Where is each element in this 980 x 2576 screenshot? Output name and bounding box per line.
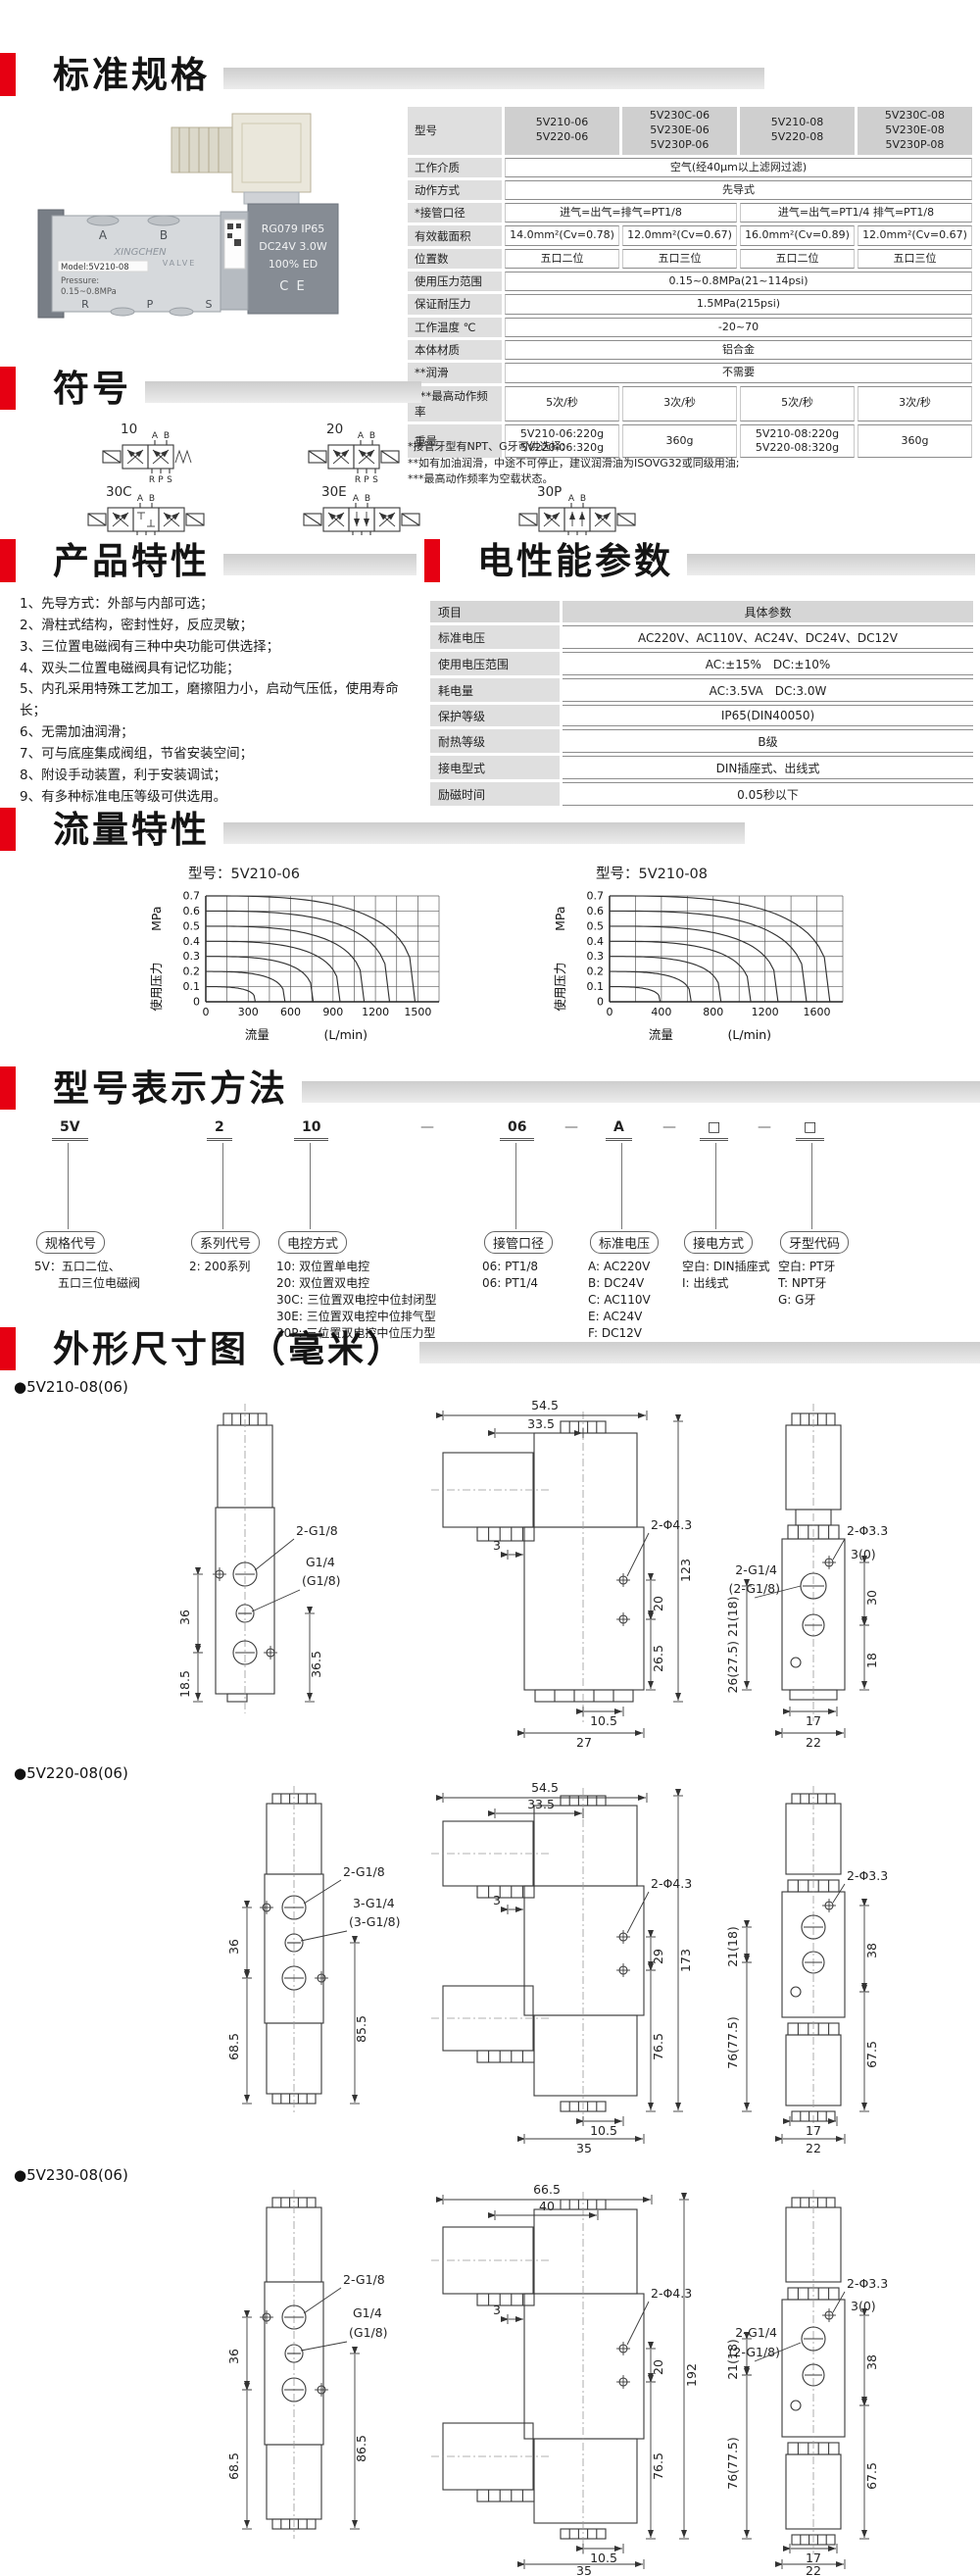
svg-text:流量: 流量 <box>245 1027 269 1042</box>
port-label-r: R <box>81 298 89 311</box>
svg-text:B: B <box>369 431 375 441</box>
svg-text:1500: 1500 <box>404 1006 431 1018</box>
model-separator: — <box>557 1119 586 1138</box>
dim-label: 68.5 <box>226 2033 241 2060</box>
symbol-code: 10 <box>121 421 137 437</box>
svg-text:(L/min): (L/min) <box>728 1027 772 1042</box>
dim-label: 33.5 <box>527 1797 555 1811</box>
dim-label: 35 <box>576 2141 592 2155</box>
dim-label: 38 <box>864 1943 879 1958</box>
svg-text:0.6: 0.6 <box>183 905 201 917</box>
header-gradient-bar <box>223 68 764 89</box>
section-header-model: 型号表示方法 <box>0 1065 980 1112</box>
spec-table: 型号5V210-065V220-065V230C-065V230E-065V23… <box>405 104 975 461</box>
spec-row-label: 使用压力范围 <box>408 272 502 291</box>
svg-text:使用压力: 使用压力 <box>553 963 567 1012</box>
svg-text:A: A <box>353 494 360 504</box>
dim-label: 2-Φ4.3 <box>651 1517 692 1532</box>
svg-text:B: B <box>149 494 155 504</box>
section-title-model: 型号表示方法 <box>53 1070 288 1107</box>
model-separator: — <box>413 1119 442 1138</box>
coil-label-3: 100% ED <box>269 258 318 271</box>
header-gradient-bar <box>687 554 975 575</box>
spec-cell: 空气(经40μm以上滤网过滤) <box>505 158 972 177</box>
spec-row-label: 保证耐压力 <box>408 294 502 314</box>
elec-cell: B级 <box>563 729 973 753</box>
spec-cell: 5次/秒 <box>505 386 619 421</box>
spec-cell: 12.0mm²(Cv=0.67) <box>857 225 972 245</box>
spec-cell: 五口三位 <box>857 249 972 269</box>
dim-label: 21(18) <box>725 1926 740 1967</box>
spec-header-model: 5V210-085V220-08 <box>740 107 855 155</box>
svg-text:1200: 1200 <box>752 1006 779 1018</box>
feature-item: 5、内孔采用特殊工艺加工，磨擦阻力小，启动气压低，使用寿命长； <box>20 679 412 722</box>
section-title-dimensions: 外形尺寸图（毫米） <box>53 1331 406 1367</box>
elec-cell: AC:±15% DC:±10% <box>563 652 973 675</box>
model-code: □ <box>796 1119 824 1141</box>
model-code: A <box>606 1119 632 1141</box>
svg-text:R: R <box>149 475 155 485</box>
dim-label: 76(77.5) <box>725 2016 740 2069</box>
red-accent-block <box>424 539 440 582</box>
spec-row-label: 有效截面积 <box>408 225 502 245</box>
dim-label: 3 <box>493 2303 501 2317</box>
dim-label: 2-Φ4.3 <box>651 1876 692 1891</box>
dim-label: 54.5 <box>531 1782 559 1795</box>
dim-label: 123 <box>678 1559 693 1582</box>
feature-item: 4、双头二位置电磁阀具有记忆功能； <box>20 659 412 680</box>
section-title-flow: 流量特性 <box>53 812 210 848</box>
spec-cell: 12.0mm²(Cv=0.67) <box>622 225 737 245</box>
dim-label: 173 <box>678 1949 693 1972</box>
model-field-box: 电控方式 <box>278 1231 347 1254</box>
spec-cell: 0.15~0.8MPa(21~114psi) <box>505 272 972 291</box>
model-connector-line <box>310 1143 311 1229</box>
brand-label: XINGCHEN <box>113 247 167 258</box>
svg-text:0.4: 0.4 <box>587 935 605 948</box>
elec-header-item: 项目 <box>430 601 560 622</box>
dim-label: 18.5 <box>177 1670 192 1698</box>
svg-text:0.5: 0.5 <box>183 919 201 932</box>
feature-item: 8、附设手动装置，利于安装调试； <box>20 766 412 787</box>
svg-text:0.2: 0.2 <box>587 966 605 978</box>
svg-text:0.1: 0.1 <box>183 980 201 993</box>
dim-label: 2-Φ3.3 <box>847 1523 888 1538</box>
feature-item: 2、滑柱式结构，密封性好，反应灵敏； <box>20 616 412 637</box>
dim-label: 17 <box>806 2123 821 2138</box>
dim-label: 2-G1/4 <box>735 1562 777 1577</box>
model-field-box: 牙型代码 <box>780 1231 849 1254</box>
features-list: 1、先导方式：外部与内部可选；2、滑柱式结构，密封性好，反应灵敏；3、三位置电磁… <box>20 594 412 809</box>
model-field-options: 空白: DIN插座式 I: 出线式 <box>682 1259 770 1292</box>
svg-text:0: 0 <box>597 996 604 1009</box>
svg-text:900: 900 <box>322 1006 343 1018</box>
spec-cell: 进气=出气=排气=PT1/8 <box>505 203 737 223</box>
svg-text:A: A <box>358 431 365 441</box>
dim-label: 20 <box>651 1596 665 1611</box>
coil-label-1: RG079 IP65 <box>262 223 325 235</box>
dim-label: 18 <box>864 1653 879 1668</box>
port-label-p: P <box>147 298 154 311</box>
svg-text:A: A <box>137 494 144 504</box>
svg-text:P: P <box>158 475 164 485</box>
svg-text:0: 0 <box>607 1006 613 1018</box>
svg-text:(L/min): (L/min) <box>324 1027 368 1042</box>
elec-header-value: 具体参数 <box>563 601 973 622</box>
elec-cell: IP65(DIN40050) <box>563 705 973 726</box>
spec-cell: 五口二位 <box>740 249 855 269</box>
spec-cell: 5次/秒 <box>740 386 855 421</box>
spec-cell: 铝合金 <box>505 340 972 360</box>
spec-cell: 3次/秒 <box>857 386 972 421</box>
dim-label: 10.5 <box>590 2123 617 2138</box>
dim-label: 36 <box>177 1610 192 1625</box>
model-code: □ <box>700 1119 728 1141</box>
spec-cell: 14.0mm²(Cv=0.78) <box>505 225 619 245</box>
din-connector <box>232 114 311 192</box>
dim-label: 76.5 <box>651 2033 665 2060</box>
header-gradient-bar <box>302 1081 980 1103</box>
elec-row-label: 保护等级 <box>430 705 560 726</box>
header-gradient-bar <box>223 554 416 575</box>
spec-cell: 五口二位 <box>505 249 619 269</box>
dim-label: 20 <box>651 2359 665 2375</box>
dim-label: 86.5 <box>354 2435 368 2462</box>
header-gradient-bar <box>145 381 421 403</box>
spec-row-label: **润滑 <box>408 363 502 382</box>
dim-label: G1/4 <box>353 2305 382 2320</box>
section-header-features: 产品特性 <box>0 537 416 584</box>
dim-label: 3 <box>493 1538 501 1553</box>
model-connector-line <box>621 1143 622 1229</box>
section-header-dimensions: 外形尺寸图（毫米） <box>0 1325 980 1372</box>
dim-label: 2-G1/4 <box>735 2325 777 2340</box>
svg-text:P: P <box>364 475 369 485</box>
model-code: 06 <box>500 1119 534 1141</box>
dim-label: (G1/8) <box>349 2325 388 2340</box>
model-connector-line <box>715 1143 716 1229</box>
elec-cell: 0.05秒以下 <box>563 782 973 806</box>
section-title-electrical: 电性能参数 <box>477 543 673 579</box>
symbol-code: 20 <box>326 421 343 437</box>
dim-label: (G1/8) <box>302 1573 341 1588</box>
section-header-electrical: 电性能参数 <box>424 537 975 584</box>
chart-title-2: 型号：5V210-08 <box>596 863 708 883</box>
dim-label: 2-G1/8 <box>343 1864 385 1879</box>
spec-header-model: 5V230C-085V230E-085V230P-08 <box>857 107 972 155</box>
section-header-symbols: 符号 <box>0 365 421 412</box>
dim-label: 17 <box>806 1713 821 1728</box>
model-field-box: 系列代号 <box>191 1231 260 1254</box>
spec-cell: 五口三位 <box>622 249 737 269</box>
dim-label: 3(0) <box>851 2299 876 2313</box>
svg-text:S: S <box>167 475 172 485</box>
spec-header-model: 5V230C-065V230E-065V230P-06 <box>622 107 737 155</box>
svg-text:1200: 1200 <box>362 1006 389 1018</box>
feature-item: 1、先导方式：外部与内部可选； <box>20 594 412 616</box>
model-connector-line <box>222 1143 223 1229</box>
dim-label: 22 <box>806 2141 821 2155</box>
flow-chart-5v210-08: 00.10.20.30.40.50.60.7040080012001600MPa… <box>549 882 853 1051</box>
feature-item: 7、可与底座集成阀组，节省安装空间； <box>20 744 412 766</box>
dim-label: 35 <box>576 2563 592 2576</box>
dim-label: 27 <box>576 1735 592 1750</box>
dim-label: (3-G1/8) <box>349 1914 400 1929</box>
svg-text:B: B <box>580 494 586 504</box>
spec-row-label: 位置数 <box>408 249 502 269</box>
valve-symbols: 10ABRPS20ABRPS30CABRPS30EABRPS30PABRPS <box>29 421 755 535</box>
red-accent-block <box>0 53 16 96</box>
elec-cell: AC220V、AC110V、AC24V、DC24V、DC12V <box>563 625 973 649</box>
dim-label: 192 <box>684 2363 699 2387</box>
spec-row-label: 工作介质 <box>408 158 502 177</box>
dim-label: 21(18) <box>725 2339 740 2380</box>
dimension-drawing-5v220: 3668.585.52-G1/83-G1/4(3-G1/8)54.533.532… <box>0 1782 980 2156</box>
svg-text:MPa: MPa <box>553 906 567 930</box>
svg-text:B: B <box>365 494 370 504</box>
model-field-box: 接管口径 <box>484 1231 553 1254</box>
model-separator: — <box>750 1119 779 1138</box>
elec-row-label: 耗电量 <box>430 678 560 702</box>
spec-row-label: *接管口径 <box>408 203 502 223</box>
cable-gland <box>171 127 232 173</box>
svg-text:0.7: 0.7 <box>587 890 605 903</box>
coil-label-2: DC24V 3.0W <box>259 240 327 253</box>
dim-label: 10.5 <box>590 1713 617 1728</box>
dim-label: 2-G1/8 <box>343 2272 385 2287</box>
svg-text:0.2: 0.2 <box>183 966 201 978</box>
red-accent-block <box>0 1066 16 1110</box>
red-accent-block <box>0 1327 16 1370</box>
svg-text:400: 400 <box>651 1006 671 1018</box>
dim-label: 33.5 <box>527 1416 555 1431</box>
svg-text:1600: 1600 <box>804 1006 831 1018</box>
section-title-features: 产品特性 <box>53 543 210 579</box>
section-header-flow: 流量特性 <box>0 806 745 853</box>
dim-label: 85.5 <box>354 2015 368 2043</box>
svg-text:S: S <box>372 475 378 485</box>
svg-text:B: B <box>164 431 170 441</box>
dimension-drawing-5v210: 3618.536.52-G1/8G1/4(G1/8)54.533.531232-… <box>0 1396 980 1753</box>
red-accent-block <box>0 539 16 582</box>
model-connector-line <box>68 1143 69 1229</box>
svg-text:使用压力: 使用压力 <box>149 963 164 1012</box>
model-connector-line <box>811 1143 812 1229</box>
model-field-options: 空白: PT牙 T: NPT牙 G: G牙 <box>778 1259 835 1309</box>
elec-row-label: 励磁时间 <box>430 782 560 806</box>
model-field-options: 2: 200系列 <box>189 1259 250 1275</box>
dim-label: 26.5 <box>651 1645 665 1672</box>
svg-text:MPa: MPa <box>149 906 164 930</box>
drawing-caption-5v210: ●5V210-08(06) <box>14 1378 128 1396</box>
brand-label-2: VALVE <box>163 259 197 268</box>
elec-cell: AC:3.5VA DC:3.0W <box>563 678 973 702</box>
svg-text:300: 300 <box>238 1006 259 1018</box>
section-title-standard: 标准规格 <box>53 57 210 93</box>
svg-text:0: 0 <box>193 996 200 1009</box>
spec-cell: 先导式 <box>505 180 972 200</box>
feature-item: 6、无需加油润滑； <box>20 722 412 744</box>
dim-label: 36 <box>226 1939 241 1955</box>
dimension-drawing-5v230: 3668.586.52-G1/8G1/4(G1/8)66.54032-Φ4.32… <box>0 2184 980 2576</box>
model-field-box: 标准电压 <box>590 1231 659 1254</box>
dim-label: 2-Φ3.3 <box>847 1868 888 1883</box>
drawing-caption-5v220: ●5V220-08(06) <box>14 1764 128 1782</box>
dim-label: 66.5 <box>533 2184 561 2197</box>
header-gradient-bar <box>223 822 745 844</box>
model-connector-line <box>515 1143 516 1229</box>
svg-text:800: 800 <box>703 1006 723 1018</box>
red-accent-block <box>0 367 16 410</box>
photo-pressure-label: Pressure: <box>61 276 99 286</box>
feature-item: 3、三位置电磁阀有三种中央功能可供选择； <box>20 637 412 659</box>
model-field-box: 规格代号 <box>36 1231 105 1254</box>
product-photo: RG079 IP65 DC24V 3.0W 100% ED C E A B XI… <box>24 106 353 351</box>
dim-label: 3-G1/4 <box>353 1896 395 1910</box>
header-gradient-bar <box>419 1342 980 1363</box>
symbol-code: 30E <box>321 484 347 500</box>
drawing-caption-5v230: ●5V230-08(06) <box>14 2166 128 2184</box>
port-label-a: A <box>99 228 108 242</box>
dim-label: 30 <box>864 1590 879 1606</box>
spec-header-label: 型号 <box>408 107 502 155</box>
svg-text:600: 600 <box>280 1006 301 1018</box>
elec-cell: DIN插座式、出线式 <box>563 756 973 779</box>
dim-label: 22 <box>806 1735 821 1750</box>
spec-cell: -20~70 <box>505 318 972 337</box>
svg-text:R: R <box>355 475 361 485</box>
dim-label: 3(0) <box>851 1547 876 1561</box>
symbol-code: 30P <box>537 484 562 500</box>
port-label-s: S <box>206 298 213 311</box>
spec-row-label: 工作温度 ℃ <box>408 318 502 337</box>
svg-text:0.3: 0.3 <box>587 950 605 963</box>
spec-row-label: 动作方式 <box>408 180 502 200</box>
dim-label: 26(27.5) 21(18) <box>725 1596 740 1693</box>
section-header-standard: 标准规格 <box>0 51 764 98</box>
red-accent-block <box>0 808 16 851</box>
svg-text:A: A <box>152 431 159 441</box>
electrical-table: 项目具体参数标准电压AC220V、AC110V、AC24V、DC24V、DC12… <box>427 598 976 809</box>
spec-cell: 进气=出气=PT1/4 排气=PT1/8 <box>740 203 972 223</box>
spec-row-label: ***最高动作频率 <box>408 386 502 421</box>
dim-label: 40 <box>539 2199 555 2213</box>
spec-cell: 3次/秒 <box>622 386 737 421</box>
chart-title-1: 型号：5V210-06 <box>188 863 300 883</box>
spec-cell: 16.0mm²(Cv=0.89) <box>740 225 855 245</box>
model-code: 5V <box>52 1119 88 1141</box>
elec-row-label: 耐热等级 <box>430 729 560 753</box>
symbol-code: 30C <box>106 484 132 500</box>
dim-label: 68.5 <box>226 2452 241 2480</box>
dim-label: G1/4 <box>306 1555 335 1569</box>
flow-chart-5v210-06: 00.10.20.30.40.50.60.7030060090012001500… <box>145 882 449 1051</box>
svg-text:0.5: 0.5 <box>587 919 605 932</box>
dim-label: 36.5 <box>309 1651 323 1678</box>
model-code: 2 <box>207 1119 232 1141</box>
photo-pressure-value: 0.15~0.8MPa <box>61 287 117 297</box>
model-designation-diagram: 5V规格代号5V：五口二位、 五口三位电磁阀2系列代号2: 200系列10电控方… <box>0 1119 980 1323</box>
model-field-options: 06: PT1/8 06: PT1/4 <box>482 1259 538 1292</box>
dim-label: 76(77.5) <box>725 2437 740 2490</box>
svg-text:流量: 流量 <box>649 1027 673 1042</box>
coil-label-ce: C E <box>279 279 306 294</box>
spec-header-model: 5V210-065V220-06 <box>505 107 619 155</box>
dim-label: 36 <box>226 2349 241 2364</box>
spec-row-label: 本体材质 <box>408 340 502 360</box>
dim-label: 3 <box>493 1893 501 1907</box>
elec-row-label: 标准电压 <box>430 625 560 649</box>
section-title-symbols: 符号 <box>53 371 131 407</box>
svg-text:0.3: 0.3 <box>183 950 201 963</box>
dim-label: 2-G1/8 <box>296 1523 338 1538</box>
model-separator: — <box>655 1119 684 1138</box>
svg-text:0.7: 0.7 <box>183 890 201 903</box>
photo-model-label: Model:5V210-08 <box>61 263 129 272</box>
datasheet-page: 标准规格 RG079 IP65 DC24V 3.0W 100% ED C E A… <box>0 0 980 2576</box>
dim-label: 38 <box>864 2354 879 2370</box>
dim-label: 2-Φ4.3 <box>651 2286 692 2301</box>
spec-cell: 1.5MPa(215psi) <box>505 294 972 314</box>
svg-text:A: A <box>568 494 575 504</box>
model-field-box: 接电方式 <box>684 1231 753 1254</box>
model-field-options: 5V：五口二位、 五口三位电磁阀 <box>34 1259 140 1292</box>
spec-cell: 不需要 <box>505 363 972 382</box>
dim-label: 10.5 <box>590 2551 617 2565</box>
model-code: 10 <box>294 1119 328 1141</box>
dim-label: 22 <box>806 2563 821 2576</box>
dim-label: 67.5 <box>864 2462 879 2490</box>
elec-row-label: 接电型式 <box>430 756 560 779</box>
dim-label: 67.5 <box>864 2041 879 2068</box>
dim-label: 54.5 <box>531 1398 559 1412</box>
elec-row-label: 使用电压范围 <box>430 652 560 675</box>
svg-text:0: 0 <box>203 1006 210 1018</box>
svg-text:0.1: 0.1 <box>587 980 605 993</box>
dim-label: 76.5 <box>651 2452 665 2480</box>
port-label-b: B <box>160 228 168 242</box>
svg-text:0.4: 0.4 <box>183 935 201 948</box>
dim-label: 2-Φ3.3 <box>847 2276 888 2291</box>
dim-label: 29 <box>651 1949 665 1964</box>
svg-text:0.6: 0.6 <box>587 905 605 917</box>
